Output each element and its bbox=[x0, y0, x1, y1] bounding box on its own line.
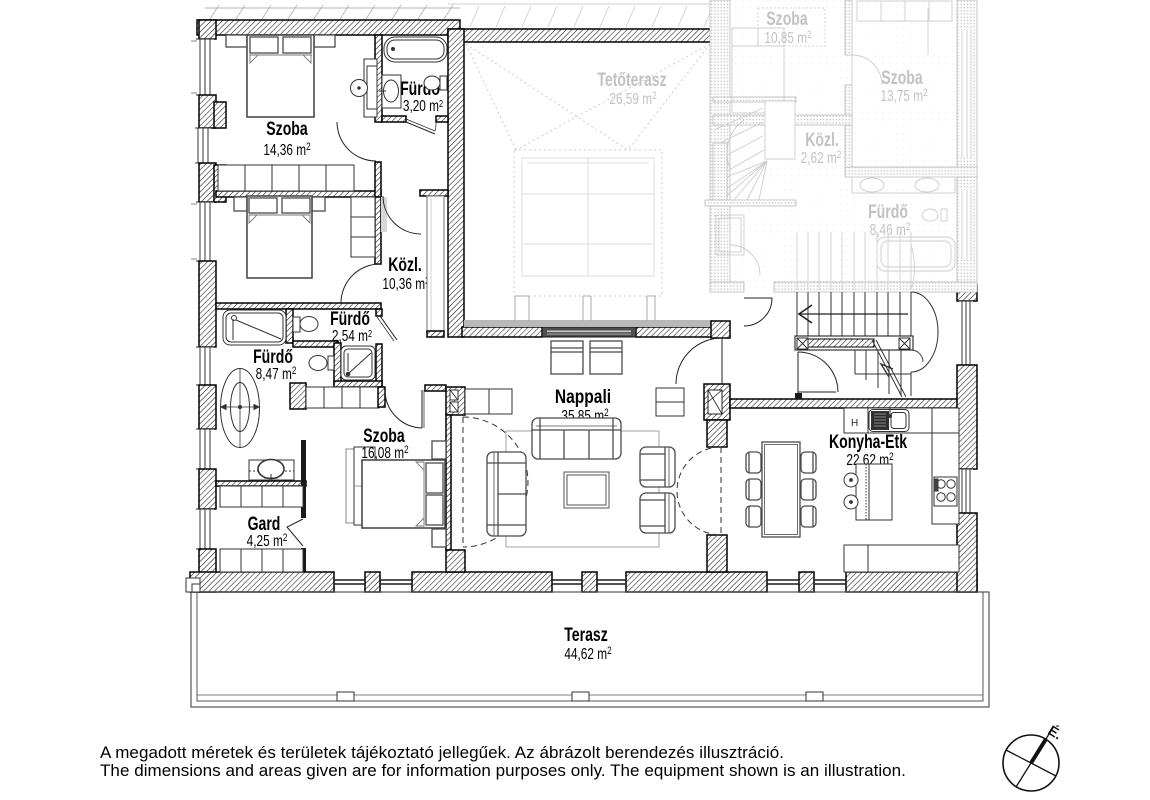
svg-text:13,75 m2: 13,75 m2 bbox=[880, 86, 927, 104]
svg-text:Terasz: Terasz bbox=[564, 624, 607, 646]
svg-text:The dimensions and areas given: The dimensions and areas given are for i… bbox=[100, 761, 906, 780]
svg-text:Nappali: Nappali bbox=[555, 386, 611, 408]
svg-text:8,46 m2: 8,46 m2 bbox=[870, 220, 911, 238]
svg-text:Szoba: Szoba bbox=[266, 118, 308, 140]
svg-text:2,54 m2: 2,54 m2 bbox=[332, 326, 372, 344]
svg-text:A megadott méretek és területe: A megadott méretek és területek tájékozt… bbox=[100, 743, 784, 762]
svg-text:2,62 m2: 2,62 m2 bbox=[801, 148, 842, 166]
svg-text:Szoba: Szoba bbox=[766, 8, 808, 30]
svg-text:3,20 m2: 3,20 m2 bbox=[403, 96, 443, 114]
svg-text:14,36 m2: 14,36 m2 bbox=[263, 140, 310, 158]
svg-text:H: H bbox=[851, 418, 858, 429]
svg-text:10,36 m2: 10,36 m2 bbox=[382, 274, 429, 292]
svg-text:16,08 m2: 16,08 m2 bbox=[361, 443, 408, 461]
svg-text:Közl.: Közl. bbox=[388, 254, 422, 276]
svg-text:4,25 m2: 4,25 m2 bbox=[247, 531, 288, 549]
svg-text:Tetőterasz: Tetőterasz bbox=[597, 69, 666, 91]
svg-text:10,85 m2: 10,85 m2 bbox=[764, 28, 811, 46]
svg-text:26,59 m2: 26,59 m2 bbox=[609, 89, 656, 107]
svg-text:8,47 m2: 8,47 m2 bbox=[256, 364, 297, 382]
svg-text:44,62 m2: 44,62 m2 bbox=[564, 644, 611, 662]
